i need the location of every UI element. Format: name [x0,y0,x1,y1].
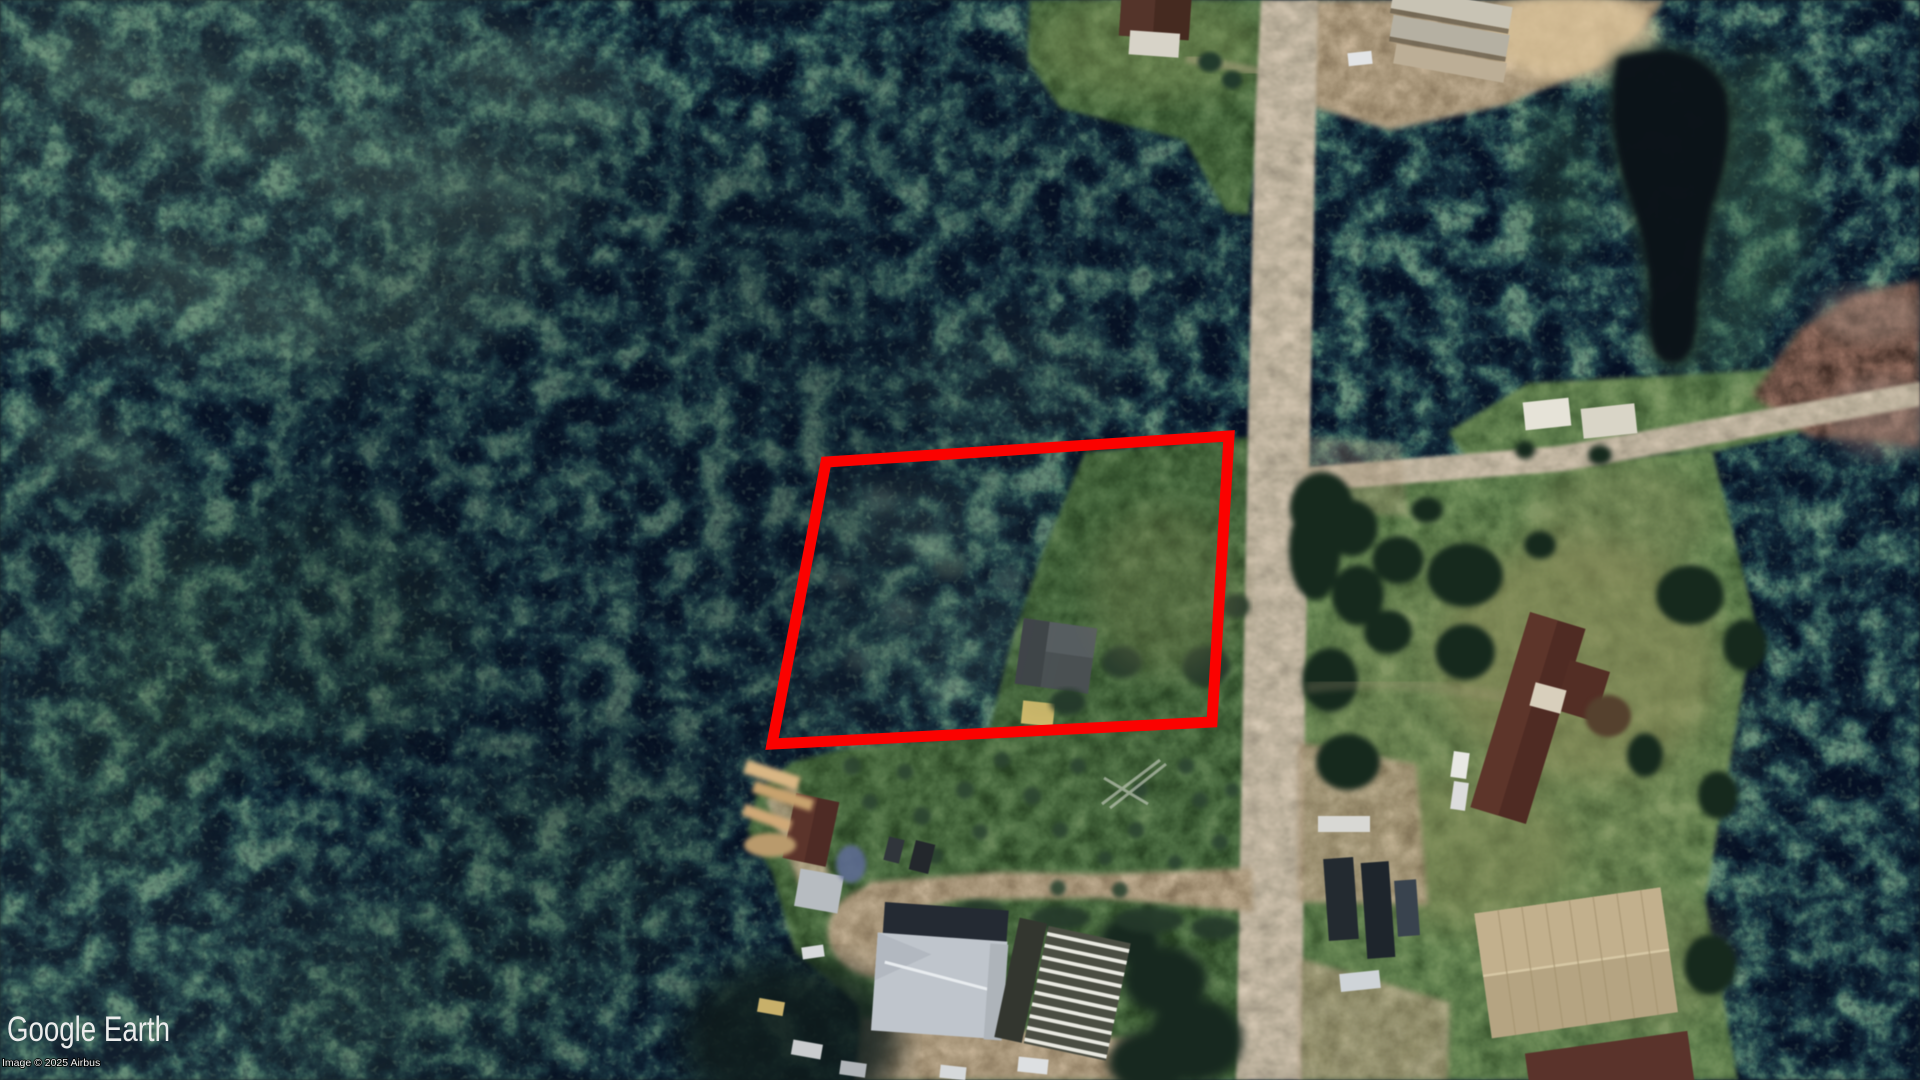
svg-text:Image © 2025 Airbus: Image © 2025 Airbus [2,1057,100,1069]
svg-text:Google Earth: Google Earth [7,1010,170,1049]
